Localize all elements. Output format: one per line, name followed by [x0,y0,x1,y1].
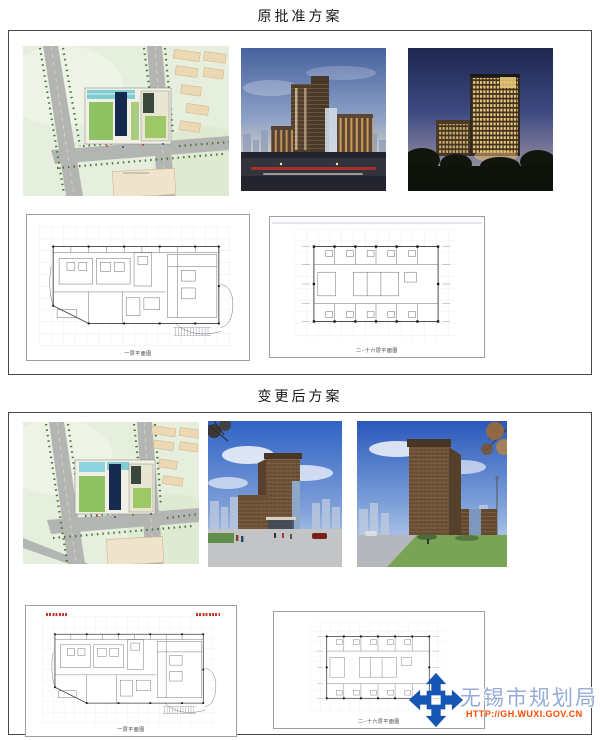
rendering-original-night-image [408,48,553,191]
site-plan-revised-image [23,422,199,564]
section-panel-original: 一层平面图 二~十六层平面图 [8,30,592,375]
floor-plan-typical-original: 二~十六层平面图 [269,216,485,358]
site-plan-original-image [23,46,229,196]
floor-plan-caption: 一层平面图 [26,726,236,733]
section-title-revised: 变更后方案 [0,386,600,406]
red-annotation [196,613,220,616]
rendering-revised-day1-image [208,421,342,567]
planning-bureau-logo-icon [408,672,464,728]
floor-plan-ground-revised: 一层平面图 [25,605,237,737]
section-title-original: 原批准方案 [0,6,600,26]
plan-header-strip [272,222,482,224]
document-page: 原批准方案 [0,0,600,740]
floor-plan-caption: 一层平面图 [27,350,249,357]
rendering-revised-day2-image [357,421,507,567]
watermark-url: HTTP://GH.WUXI.GOV.CN [466,709,583,719]
floor-plan-ground-original: 一层平面图 [26,214,250,361]
rendering-original-dusk-image [241,48,386,191]
watermark-bureau-name: 无锡市规划局 [460,682,598,712]
red-annotation [46,613,68,616]
floor-plan-caption: 二~十六层平面图 [270,347,484,354]
